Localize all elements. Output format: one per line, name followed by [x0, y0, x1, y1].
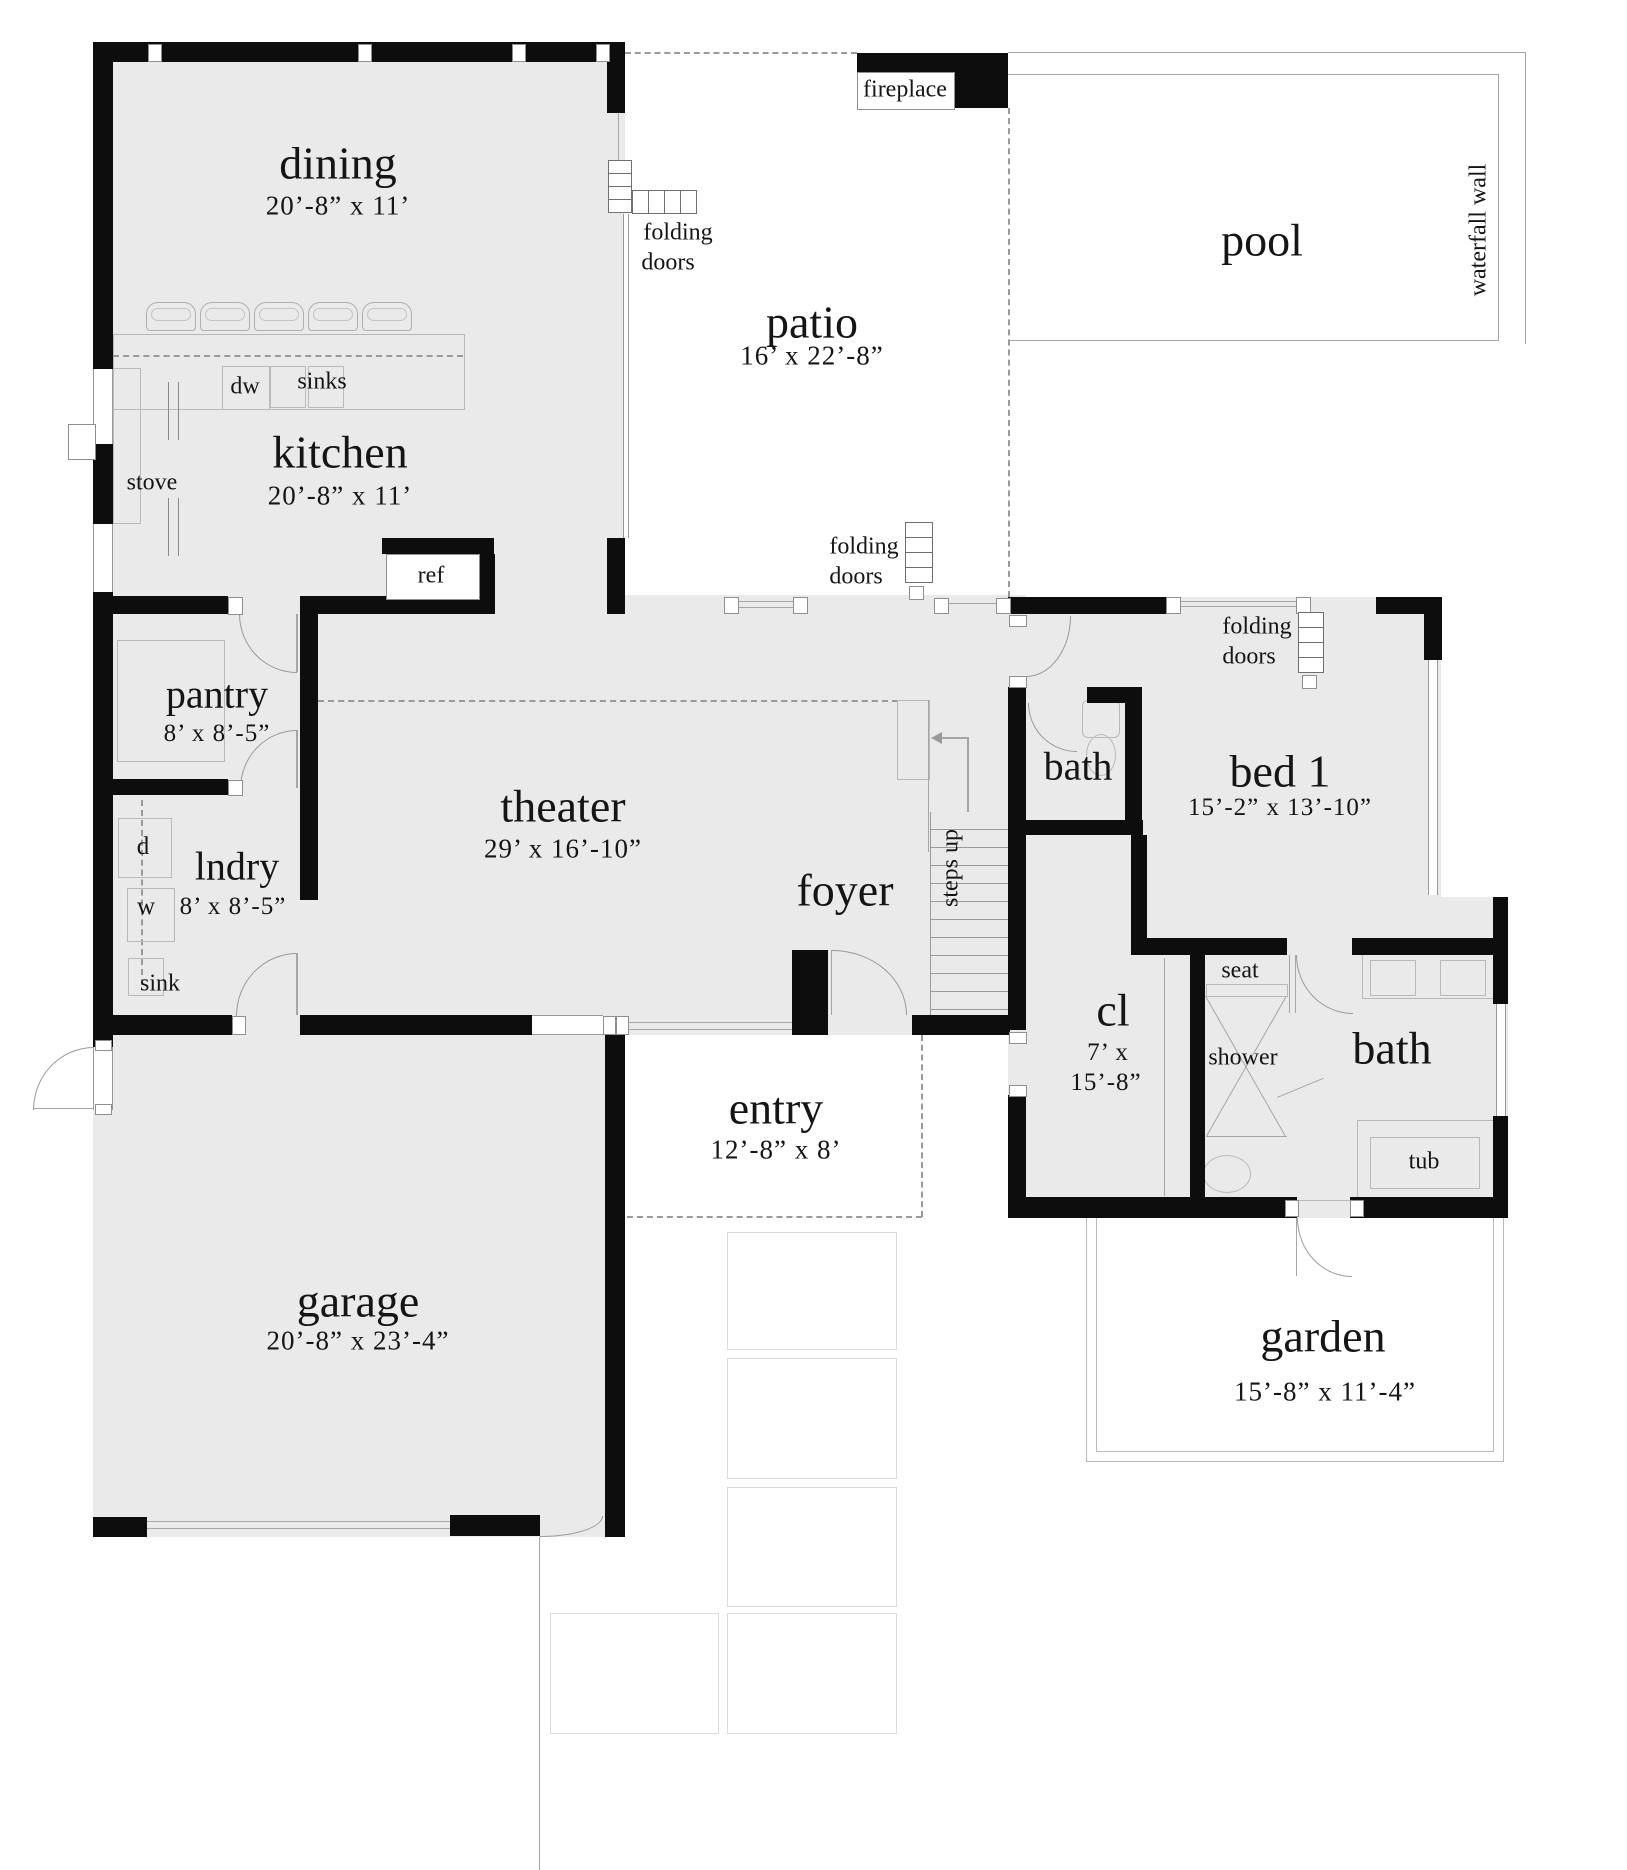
- stairs-arrow-head: [931, 732, 942, 744]
- closet-rod: [1164, 958, 1165, 1196]
- line: [1178, 606, 1300, 607]
- folding-door-panel: [1298, 612, 1324, 628]
- pantry-label: pantry: [166, 671, 268, 718]
- tub-label: tub: [1409, 1149, 1440, 1176]
- stove-lines: [168, 382, 179, 440]
- door-jamb: [934, 598, 949, 614]
- vanity-sink: [1370, 960, 1416, 996]
- waterfall-wall-label: waterfall wall: [1466, 164, 1493, 297]
- dw-label: dw: [230, 374, 259, 401]
- wall: [1147, 938, 1287, 955]
- bath-upper-label: bath: [1044, 743, 1113, 790]
- line: [928, 700, 929, 852]
- line: [629, 1029, 792, 1030]
- kitchen-dims: 20’-8” x 11’: [268, 481, 412, 512]
- patio-dims: 16’ x 22’-8”: [740, 341, 883, 372]
- folding-door-panel: [1298, 657, 1324, 673]
- garden-label: garden: [1260, 1310, 1385, 1363]
- garage-dims: 20’-8” x 23’-4”: [267, 1326, 450, 1357]
- pool-label: pool: [1221, 214, 1303, 267]
- wall: [113, 779, 228, 795]
- window-marker: [358, 44, 372, 62]
- line: [1178, 601, 1300, 602]
- bar-stool: [362, 302, 412, 331]
- folding-door-panel: [905, 552, 933, 568]
- dryer-label: d: [137, 833, 150, 861]
- wall: [1376, 597, 1442, 614]
- steps-up-label: steps up: [938, 829, 965, 907]
- theater-dims: 29’ x 16’-10”: [484, 834, 642, 865]
- wall: [1125, 687, 1142, 835]
- theater-label: theater: [500, 780, 625, 833]
- folding-doors-label: folding: [1222, 614, 1291, 641]
- door-jamb: [793, 597, 808, 614]
- paver: [727, 1232, 897, 1350]
- laundry-dims: 8’ x 8’-5”: [180, 893, 287, 921]
- entry-boundary: [627, 1216, 922, 1218]
- wall: [382, 538, 494, 554]
- window-marker: [148, 44, 162, 62]
- washer-label: w: [137, 893, 155, 921]
- folding-door-panel: [664, 190, 681, 214]
- wall: [1131, 835, 1147, 955]
- toilet: [1082, 700, 1120, 738]
- bar-stool: [308, 302, 358, 331]
- entry-label: entry: [729, 1082, 824, 1135]
- door-leaf: [1289, 955, 1290, 1013]
- bed1-label: bed 1: [1230, 745, 1331, 798]
- bar-stool: [254, 302, 304, 331]
- vanity-sink: [1440, 960, 1486, 996]
- window: [93, 524, 113, 592]
- closet-dims: 15’-8”: [1070, 1069, 1141, 1097]
- toilet: [1203, 1155, 1251, 1193]
- door-jamb: [996, 598, 1011, 614]
- bar-stool: [200, 302, 250, 331]
- wall: [1190, 953, 1205, 1199]
- folding-door-panel: [905, 537, 933, 553]
- line: [737, 607, 793, 608]
- laundry-label: lndry: [195, 843, 279, 890]
- door-jamb: [616, 1016, 629, 1035]
- window: [532, 1015, 603, 1035]
- wall: [450, 1515, 540, 1536]
- pantry-dims: 8’ x 8’-5”: [164, 720, 271, 748]
- entry-boundary: [921, 1035, 923, 1217]
- dining-dims: 20’-8” x 11’: [266, 191, 410, 222]
- pool-edge: [1525, 52, 1526, 344]
- patio-pool-boundary: [1008, 108, 1010, 597]
- dining-label: dining: [279, 137, 397, 190]
- bar-stool: [146, 302, 196, 331]
- wall: [912, 1015, 1010, 1035]
- garden-dims: 15’-8” x 11’-4”: [1234, 1377, 1416, 1408]
- stove-label: stove: [127, 470, 178, 497]
- bed1-dims: 15’-2” x 13’-10”: [1188, 794, 1372, 822]
- folding-doors-label: folding: [643, 220, 712, 247]
- wall: [1350, 1197, 1508, 1218]
- bath-main-label: bath: [1352, 1022, 1431, 1075]
- foyer-label: foyer: [796, 864, 893, 917]
- ref-label: ref: [418, 563, 445, 590]
- paver: [727, 1487, 897, 1607]
- wall: [113, 596, 228, 614]
- wall: [1008, 597, 1178, 614]
- folding-door-panel: [648, 190, 665, 214]
- door-jamb: [1009, 676, 1027, 688]
- wall: [93, 444, 113, 524]
- wall: [93, 1517, 147, 1537]
- door-jamb: [909, 586, 924, 600]
- pool-edge: [1008, 74, 1498, 75]
- door-jamb: [232, 1016, 246, 1035]
- line: [629, 1022, 792, 1023]
- folding-door-panel: [632, 190, 649, 214]
- door-jamb: [1350, 1200, 1364, 1217]
- wall: [93, 592, 113, 1047]
- pool-edge: [1010, 340, 1498, 341]
- shower-seat: [1206, 984, 1288, 997]
- stove-vent: [68, 424, 96, 460]
- fireplace-label: fireplace: [863, 77, 947, 104]
- stove-lines: [168, 498, 179, 556]
- wall: [1087, 687, 1142, 703]
- door-jamb: [1285, 1200, 1299, 1217]
- paver: [727, 1358, 897, 1479]
- window: [1496, 1004, 1506, 1116]
- folding-doors-label: doors: [1222, 644, 1275, 671]
- sinks-label: sinks: [297, 369, 346, 396]
- folding-door-panel: [1298, 642, 1324, 658]
- folding-door-panel: [608, 199, 632, 213]
- seat-label: seat: [1221, 958, 1258, 985]
- door-jamb: [1009, 1032, 1027, 1044]
- wall: [93, 42, 113, 369]
- paver: [727, 1613, 897, 1734]
- wall: [607, 538, 625, 614]
- wall: [1493, 897, 1508, 1004]
- window: [1428, 660, 1438, 895]
- window: [93, 369, 113, 444]
- counter-dashed-line: [113, 355, 463, 357]
- pool-edge: [1498, 74, 1499, 341]
- door-jamb: [1009, 1085, 1027, 1097]
- door-jamb: [724, 597, 739, 614]
- door-jamb: [95, 1104, 112, 1115]
- line: [947, 603, 997, 604]
- stairs-arrow: [967, 737, 969, 812]
- line: [737, 601, 793, 602]
- side-door-opening: [93, 1047, 113, 1110]
- door-jamb: [1009, 615, 1027, 627]
- garage-door: [147, 1528, 450, 1529]
- folding-door-panel: [1298, 627, 1324, 643]
- folding-door-panel: [905, 522, 933, 538]
- door-jamb: [95, 1040, 112, 1051]
- wall: [605, 1035, 625, 1537]
- patio-boundary: [625, 52, 857, 54]
- wall: [1008, 1197, 1297, 1218]
- door-jamb: [228, 780, 243, 796]
- paver: [550, 1613, 719, 1734]
- folding-doors-label: doors: [829, 564, 882, 591]
- door-jamb: [603, 1016, 616, 1035]
- door-arc: [33, 1047, 94, 1110]
- wall: [113, 1015, 232, 1035]
- wall: [1008, 687, 1026, 1030]
- entry-dims: 12’-8” x 8’: [711, 1135, 842, 1166]
- folding-doors-label: doors: [641, 250, 694, 277]
- garage-label: garage: [297, 1275, 420, 1328]
- stair-landing: [897, 700, 930, 780]
- window-marker: [596, 44, 610, 62]
- stove-appliance: [113, 368, 141, 524]
- stairs-arrow: [942, 737, 969, 739]
- closet-dims: 7’ x: [1087, 1039, 1129, 1067]
- sink-label: sink: [140, 971, 180, 998]
- wall: [300, 1015, 532, 1035]
- ceiling-break-line: [318, 700, 898, 702]
- shower-label: shower: [1208, 1045, 1277, 1072]
- wall: [1352, 938, 1493, 955]
- folding-door-panel: [608, 173, 632, 187]
- door-jamb: [1302, 675, 1317, 689]
- glass-wall: [623, 214, 629, 538]
- folding-doors-label: folding: [829, 534, 898, 561]
- wall: [300, 596, 318, 900]
- folding-door-panel: [608, 186, 632, 200]
- walkway-line: [539, 1537, 540, 1870]
- wall: [1012, 820, 1143, 835]
- garage-door: [147, 1521, 450, 1522]
- window-marker: [512, 44, 526, 62]
- door-jamb: [1166, 597, 1181, 614]
- wall: [792, 950, 828, 1035]
- line: [618, 112, 619, 162]
- folding-door-panel: [680, 190, 697, 214]
- folding-door-panel: [905, 567, 933, 583]
- floor-plan: dining 20’-8” x 11’ dw sinks stove kitch…: [0, 0, 1627, 1870]
- line: [1206, 1136, 1287, 1137]
- folding-door-panel: [608, 160, 632, 174]
- closet-label: cl: [1096, 984, 1129, 1037]
- wall: [1424, 614, 1442, 660]
- door-jamb: [228, 597, 243, 615]
- wall: [607, 53, 625, 113]
- kitchen-label: kitchen: [272, 426, 407, 479]
- pool-edge: [1008, 52, 1525, 53]
